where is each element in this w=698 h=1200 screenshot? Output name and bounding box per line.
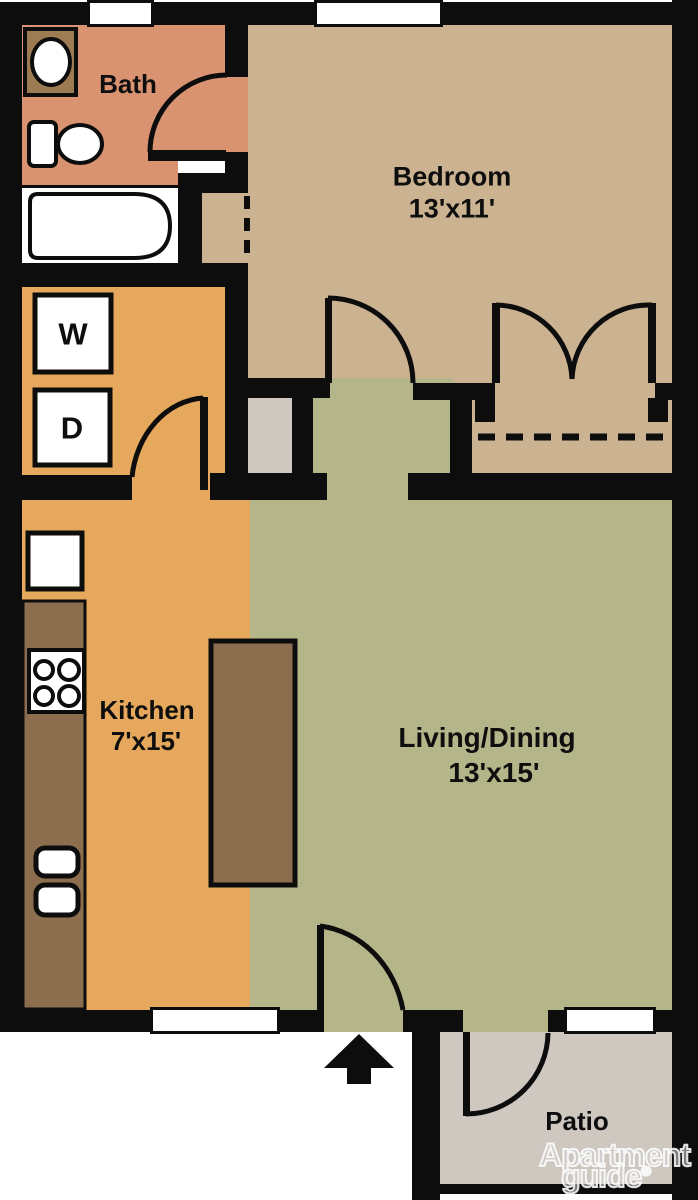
bathtub-icon xyxy=(30,194,170,258)
entry-door-arc xyxy=(320,926,403,1010)
bedroom-door xyxy=(325,298,413,383)
bathroom-vanity xyxy=(25,29,76,95)
closet-door-leaf-left xyxy=(492,303,500,383)
bath-door-leaf xyxy=(148,150,226,161)
kitchen-island xyxy=(211,641,295,885)
living-label: Living/Dining xyxy=(398,724,575,752)
watermark-registered-mark: ® xyxy=(641,1163,650,1178)
bath-door xyxy=(148,75,227,161)
toilet-icon xyxy=(29,122,102,166)
washer-label: W xyxy=(58,319,87,350)
entry-arrow-icon xyxy=(324,1034,394,1084)
laundry-door-arc xyxy=(132,398,203,477)
living-dims: 13'x15' xyxy=(448,759,539,787)
bedroom-door-arc xyxy=(328,298,413,383)
bedroom-closet-double-door xyxy=(492,303,656,383)
patio-label: Patio xyxy=(545,1108,609,1134)
bathroom-sink-icon xyxy=(32,39,70,85)
floor-plan: Bath Bedroom 13'x11' W D Kitchen 7'x15' … xyxy=(0,0,698,1200)
dryer-label: D xyxy=(61,413,83,444)
closet-door-arc-left xyxy=(496,305,572,379)
bath-label: Bath xyxy=(99,71,157,97)
watermark-guide-text: guide xyxy=(561,1158,641,1194)
entry-door xyxy=(317,925,403,1032)
patio-door-leaf xyxy=(463,1032,470,1116)
bedroom-label: Bedroom xyxy=(393,164,512,191)
laundry-door-leaf xyxy=(200,397,208,490)
bedroom-dims: 13'x11' xyxy=(409,196,495,223)
refrigerator-icon xyxy=(28,533,82,589)
closet-door-leaf-right xyxy=(648,303,656,383)
kitchen-label: Kitchen xyxy=(99,697,194,723)
kitchen-dims: 7'x15' xyxy=(111,728,181,754)
patio-door-arc xyxy=(466,1033,548,1114)
closet-door-arc-right xyxy=(572,305,652,379)
laundry-door xyxy=(132,397,208,490)
stove-icon xyxy=(29,650,84,712)
bedroom-door-leaf xyxy=(325,298,332,383)
watermark-line2: guide® xyxy=(561,1160,650,1192)
fixtures-and-doors-layer xyxy=(0,0,698,1200)
entry-door-leaf xyxy=(317,925,324,1032)
patio-door xyxy=(463,1032,548,1116)
bath-door-arc xyxy=(150,75,227,152)
